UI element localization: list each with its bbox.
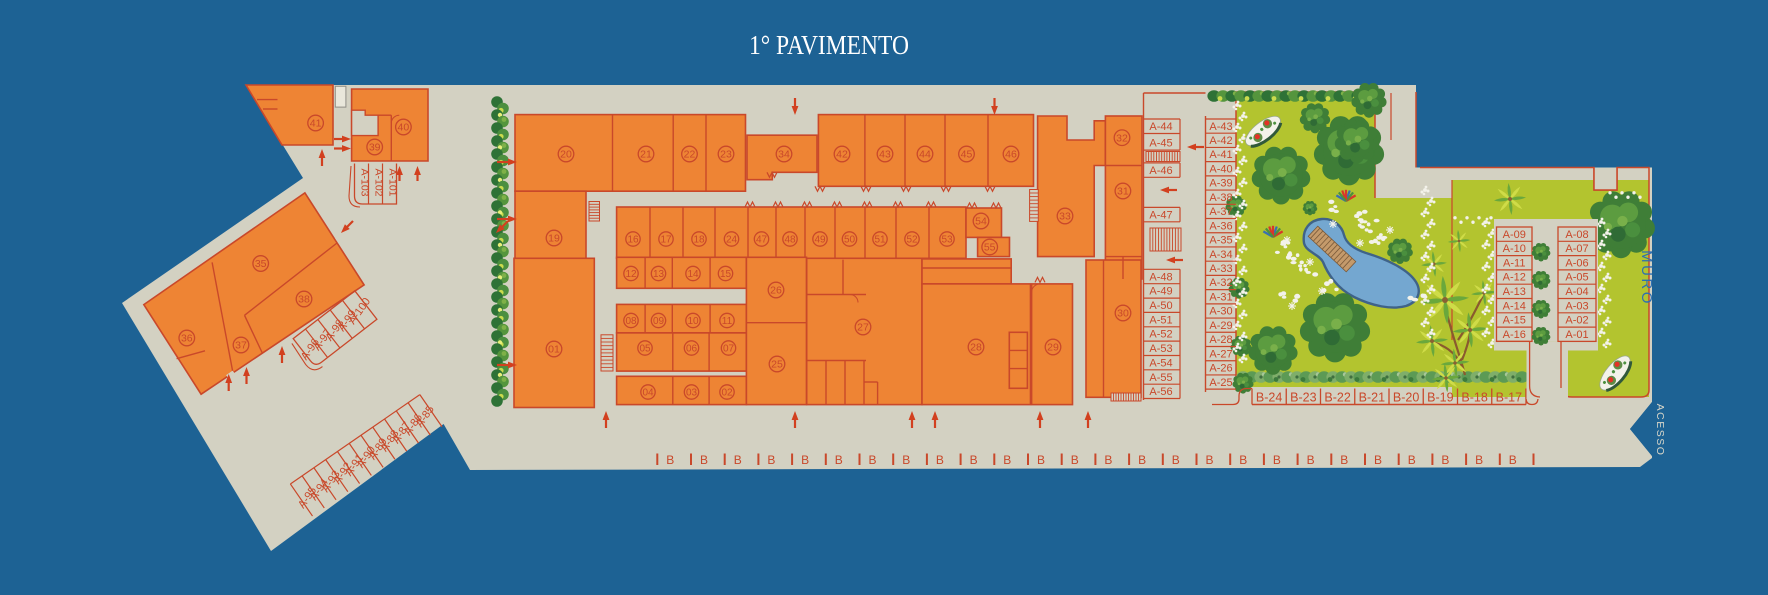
svg-text:ACESSO: ACESSO [1654,404,1666,457]
svg-text:A-47: A-47 [1149,209,1172,221]
svg-text:A-01: A-01 [1565,329,1588,341]
svg-text:35: 35 [255,258,267,270]
svg-text:22: 22 [684,149,696,161]
svg-text:A-102: A-102 [373,168,385,196]
svg-text:29: 29 [1047,342,1059,354]
svg-text:12: 12 [625,269,637,280]
svg-text:A-43: A-43 [1209,121,1232,133]
svg-text:B: B [902,453,910,467]
svg-text:15: 15 [720,269,732,280]
svg-text:02: 02 [721,388,733,399]
svg-text:09: 09 [653,316,665,327]
svg-text:46: 46 [1005,149,1017,161]
svg-text:B: B [1307,453,1315,467]
svg-text:A-37: A-37 [1209,206,1232,218]
svg-text:A-44: A-44 [1149,121,1172,133]
svg-text:52: 52 [906,235,918,246]
svg-text:B: B [1408,453,1416,467]
svg-text:16: 16 [627,235,639,246]
svg-text:A-05: A-05 [1565,272,1588,284]
svg-text:45: 45 [961,149,973,161]
svg-text:54: 54 [975,216,987,228]
svg-text:B-20: B-20 [1393,390,1419,404]
svg-text:A-29: A-29 [1209,320,1232,332]
svg-text:07: 07 [723,344,735,355]
svg-text:08: 08 [625,316,637,327]
svg-text:11: 11 [722,316,733,327]
svg-text:B: B [1104,453,1112,467]
svg-text:B: B [767,453,775,467]
svg-text:43: 43 [879,149,891,161]
svg-text:B: B [868,453,876,467]
svg-text:A-49: A-49 [1149,286,1172,298]
svg-text:A-33: A-33 [1209,263,1232,275]
svg-text:33: 33 [1059,211,1071,223]
svg-text:36: 36 [181,333,193,345]
svg-text:20: 20 [560,149,572,161]
svg-text:A-28: A-28 [1209,334,1232,346]
svg-text:05: 05 [639,344,651,355]
svg-text:A-54: A-54 [1149,357,1172,369]
svg-text:25: 25 [771,359,783,371]
svg-text:A-52: A-52 [1149,329,1172,341]
svg-text:A-30: A-30 [1209,306,1232,318]
svg-text:28: 28 [970,342,982,354]
svg-text:49: 49 [814,235,826,246]
svg-text:B: B [1037,453,1045,467]
svg-text:26: 26 [770,285,782,297]
svg-text:A-07: A-07 [1565,243,1588,255]
svg-text:44: 44 [919,149,931,161]
svg-text:40: 40 [398,122,410,134]
svg-text:A-48: A-48 [1149,271,1172,283]
svg-text:B-17: B-17 [1496,390,1522,404]
svg-text:B-18: B-18 [1461,390,1487,404]
svg-text:A-25: A-25 [1209,377,1232,389]
svg-text:A-03: A-03 [1565,300,1588,312]
svg-text:A-15: A-15 [1503,315,1526,327]
svg-text:39: 39 [369,142,381,154]
svg-text:A-45: A-45 [1149,138,1172,150]
svg-text:A-42: A-42 [1209,135,1232,147]
svg-text:B: B [1340,453,1348,467]
svg-text:B: B [835,453,843,467]
svg-text:37: 37 [235,340,247,352]
svg-text:13: 13 [653,269,665,280]
svg-text:A-02: A-02 [1565,315,1588,327]
svg-text:A-13: A-13 [1503,286,1526,298]
svg-text:A-55: A-55 [1149,372,1172,384]
svg-text:A-36: A-36 [1209,220,1232,232]
svg-text:B: B [936,453,944,467]
svg-text:30: 30 [1117,308,1129,320]
svg-text:A-56: A-56 [1149,386,1172,398]
svg-text:14: 14 [687,269,699,280]
svg-text:A-14: A-14 [1503,300,1526,312]
svg-text:B: B [1273,453,1281,467]
svg-text:27: 27 [857,322,869,334]
svg-text:A-16: A-16 [1503,329,1526,341]
svg-text:1° PAVIMENTO: 1° PAVIMENTO [749,30,909,60]
svg-text:B: B [700,453,708,467]
svg-text:55: 55 [984,242,996,254]
svg-text:B-24: B-24 [1256,390,1282,404]
svg-text:01: 01 [548,344,560,356]
svg-text:04: 04 [642,388,654,399]
svg-text:53: 53 [941,235,953,246]
svg-text:B: B [1441,453,1449,467]
svg-text:B-19: B-19 [1427,390,1453,404]
svg-text:A-34: A-34 [1209,249,1232,261]
svg-text:B-21: B-21 [1359,390,1385,404]
svg-text:24: 24 [726,235,738,246]
svg-text:A-11: A-11 [1503,257,1525,269]
svg-text:03: 03 [686,388,698,399]
svg-text:42: 42 [836,149,848,161]
svg-text:19: 19 [548,233,560,245]
svg-text:B: B [970,453,978,467]
svg-text:A-103: A-103 [359,168,371,196]
svg-text:B: B [1509,453,1517,467]
svg-text:34: 34 [778,149,790,161]
svg-text:B: B [1374,453,1382,467]
svg-text:A-27: A-27 [1209,348,1232,360]
svg-text:B: B [1172,453,1180,467]
svg-text:A-40: A-40 [1209,163,1232,175]
svg-text:B: B [1239,453,1247,467]
svg-text:B: B [734,453,742,467]
svg-text:A-09: A-09 [1503,229,1526,241]
svg-text:A-31: A-31 [1209,291,1232,303]
svg-text:38: 38 [298,294,310,306]
svg-text:21: 21 [640,149,652,161]
svg-text:A-101: A-101 [387,168,399,196]
svg-text:A-51: A-51 [1149,314,1172,326]
svg-text:A-38: A-38 [1209,192,1232,204]
svg-text:18: 18 [693,235,705,246]
svg-text:A-26: A-26 [1209,363,1232,375]
svg-text:B-22: B-22 [1324,390,1350,404]
svg-text:A-41: A-41 [1209,149,1232,161]
svg-text:A-10: A-10 [1503,243,1526,255]
svg-text:23: 23 [720,149,732,161]
svg-text:B: B [1003,453,1011,467]
svg-text:MURO: MURO [1638,250,1655,306]
svg-text:06: 06 [686,344,698,355]
svg-text:A-32: A-32 [1209,277,1232,289]
svg-text:32: 32 [1116,132,1128,144]
svg-text:A-53: A-53 [1149,343,1172,355]
svg-text:48: 48 [784,235,796,246]
svg-text:A-39: A-39 [1209,178,1232,190]
svg-text:A-04: A-04 [1565,286,1588,298]
svg-text:A-12: A-12 [1503,272,1526,284]
svg-text:51: 51 [874,235,886,246]
svg-text:A-35: A-35 [1209,235,1232,247]
svg-text:50: 50 [844,235,856,246]
svg-text:B-23: B-23 [1290,390,1316,404]
svg-text:41: 41 [310,118,322,130]
svg-text:10: 10 [687,316,699,327]
svg-text:A-46: A-46 [1149,165,1172,177]
svg-text:47: 47 [756,235,768,246]
svg-text:B: B [1071,453,1079,467]
svg-text:A-08: A-08 [1565,229,1588,241]
svg-text:B: B [801,453,809,467]
svg-text:17: 17 [660,235,672,246]
svg-text:B: B [1205,453,1213,467]
svg-text:A-06: A-06 [1565,257,1588,269]
svg-text:B: B [1138,453,1146,467]
svg-text:31: 31 [1117,186,1129,198]
svg-text:A-50: A-50 [1149,300,1172,312]
svg-text:B: B [666,453,674,467]
svg-text:B: B [1475,453,1483,467]
